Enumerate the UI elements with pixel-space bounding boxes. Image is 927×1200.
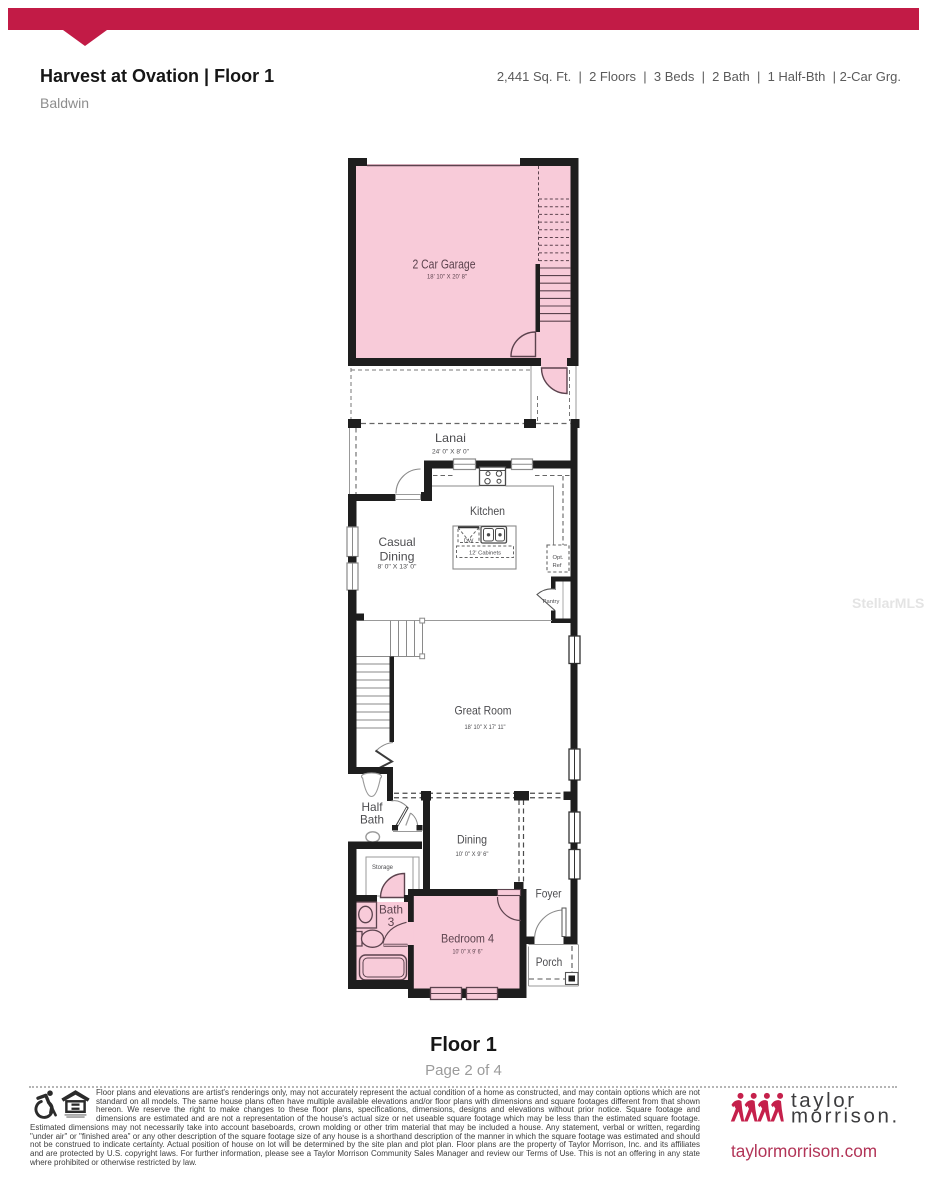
svg-text:Dining: Dining [380, 550, 415, 564]
svg-text:2 Car Garage: 2 Car Garage [413, 258, 476, 272]
svg-text:Great Room: Great Room [455, 704, 512, 718]
svg-text:morrison.: morrison. [791, 1105, 900, 1128]
svg-text:Lanai: Lanai [435, 431, 466, 445]
svg-text:Kitchen: Kitchen [470, 504, 505, 518]
svg-text:Casual: Casual [379, 535, 416, 549]
svg-text:Pantry: Pantry [543, 599, 560, 605]
svg-text:24' 0" X 8' 0": 24' 0" X 8' 0" [432, 449, 470, 456]
svg-text:Storage: Storage [372, 864, 394, 871]
svg-text:3: 3 [388, 915, 395, 929]
svg-text:Ref: Ref [552, 563, 561, 569]
svg-text:12' Cabinets: 12' Cabinets [469, 551, 501, 557]
svg-text:Opt.: Opt. [553, 555, 564, 561]
svg-text:18' 10" X 17' 11": 18' 10" X 17' 11" [465, 724, 507, 731]
svg-text:10' 0" X 9' 6": 10' 0" X 9' 6" [453, 949, 484, 956]
svg-text:Foyer: Foyer [536, 887, 562, 901]
svg-text:Dining: Dining [457, 833, 487, 847]
svg-text:Porch: Porch [536, 955, 563, 969]
svg-text:10' 0" X 9' 6": 10' 0" X 9' 6" [456, 851, 490, 858]
svg-text:DW: DW [464, 539, 474, 545]
svg-text:Bath: Bath [360, 813, 384, 827]
svg-text:18' 10" X 20' 8": 18' 10" X 20' 8" [427, 274, 468, 281]
svg-text:Bedroom 4: Bedroom 4 [441, 932, 494, 946]
svg-text:8' 0" X 13' 0": 8' 0" X 13' 0" [378, 564, 418, 571]
